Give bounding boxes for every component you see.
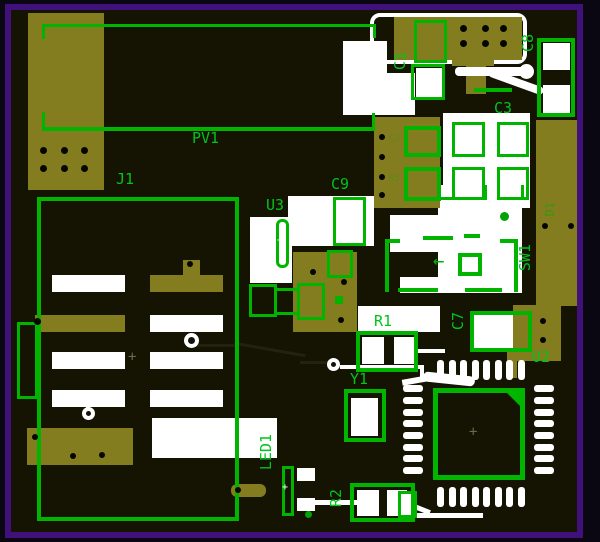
- pcb-layout-canvas: ← + + + + PV1 J1 C1 C8 C3 C9 U3 C2 R5 D1: [0, 0, 600, 542]
- board-frame: [5, 4, 583, 538]
